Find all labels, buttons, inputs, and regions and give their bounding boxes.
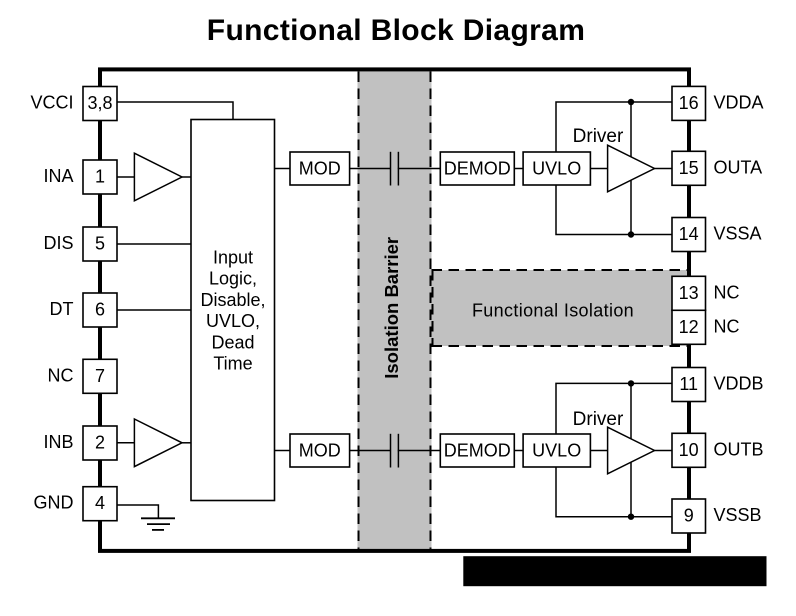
svg-text:2: 2 xyxy=(95,433,105,453)
svg-text:14: 14 xyxy=(679,224,699,244)
svg-text:DT: DT xyxy=(50,299,74,319)
svg-text:1: 1 xyxy=(95,167,105,187)
svg-text:INB: INB xyxy=(43,432,73,452)
svg-text:DEMOD: DEMOD xyxy=(444,441,511,461)
svg-text:5: 5 xyxy=(95,234,105,254)
svg-text:15: 15 xyxy=(679,158,699,178)
svg-text:DEMOD: DEMOD xyxy=(444,159,511,179)
svg-text:6: 6 xyxy=(95,300,105,320)
svg-text:MOD: MOD xyxy=(299,159,341,179)
svg-text:Functional Isolation: Functional Isolation xyxy=(472,301,634,321)
svg-text:11: 11 xyxy=(679,374,698,394)
svg-text:Dead: Dead xyxy=(211,332,254,352)
svg-text:Driver: Driver xyxy=(573,126,624,147)
svg-text:4: 4 xyxy=(95,493,105,513)
svg-text:16: 16 xyxy=(679,93,699,113)
svg-text:NC: NC xyxy=(714,282,740,302)
svg-text:Disable,: Disable, xyxy=(200,290,265,310)
svg-text:VCCI: VCCI xyxy=(30,93,73,113)
svg-text:NC: NC xyxy=(48,365,74,385)
svg-text:INA: INA xyxy=(43,166,73,186)
svg-text:12: 12 xyxy=(679,317,699,337)
svg-text:Time: Time xyxy=(213,354,252,374)
svg-text:OUTB: OUTB xyxy=(714,439,764,459)
svg-text:7: 7 xyxy=(95,366,105,386)
svg-text:VSSA: VSSA xyxy=(714,224,762,244)
svg-text:Driver: Driver xyxy=(573,409,624,430)
svg-text:3,8: 3,8 xyxy=(87,93,112,113)
svg-text:VDDA: VDDA xyxy=(714,92,764,112)
svg-text:Input: Input xyxy=(213,248,253,268)
svg-text:VDDB: VDDB xyxy=(714,374,764,394)
svg-text:10: 10 xyxy=(679,440,699,460)
svg-text:UVLO,: UVLO, xyxy=(206,311,260,331)
svg-text:NC: NC xyxy=(714,316,740,336)
svg-text:UVLO: UVLO xyxy=(532,441,581,461)
svg-text:Logic,: Logic, xyxy=(209,269,257,289)
svg-text:OUTA: OUTA xyxy=(714,157,763,177)
svg-text:UVLO: UVLO xyxy=(532,159,581,179)
svg-text:GND: GND xyxy=(34,493,74,513)
svg-text:DIS: DIS xyxy=(43,233,73,253)
svg-text:MOD: MOD xyxy=(299,441,341,461)
svg-text:Isolation Barrier: Isolation Barrier xyxy=(381,237,402,379)
svg-text:Functional Block Diagram: Functional Block Diagram xyxy=(207,14,585,47)
svg-text:VSSB: VSSB xyxy=(714,505,762,525)
svg-text:9: 9 xyxy=(684,506,694,526)
svg-text:13: 13 xyxy=(679,283,699,303)
